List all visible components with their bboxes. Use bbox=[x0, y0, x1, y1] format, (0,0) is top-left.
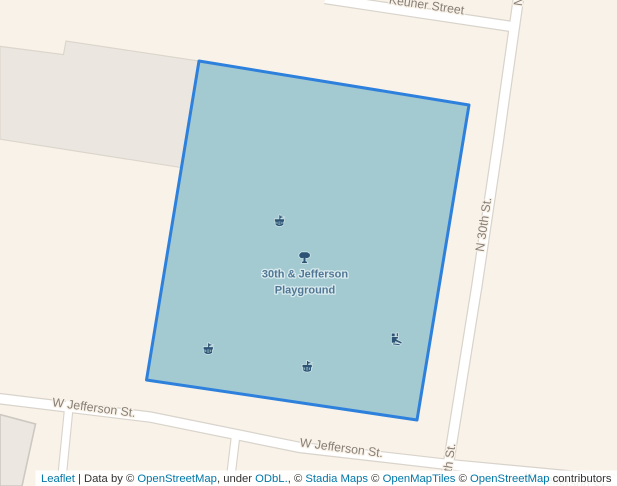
svg-text:Leaflet | Data by © OpenStreet: Leaflet | Data by © OpenStreetMap, under… bbox=[41, 473, 612, 485]
svg-text:N: N bbox=[511, 0, 526, 7]
svg-text:Playground: Playground bbox=[275, 285, 336, 297]
svg-text:30th & Jefferson: 30th & Jefferson bbox=[262, 268, 348, 280]
